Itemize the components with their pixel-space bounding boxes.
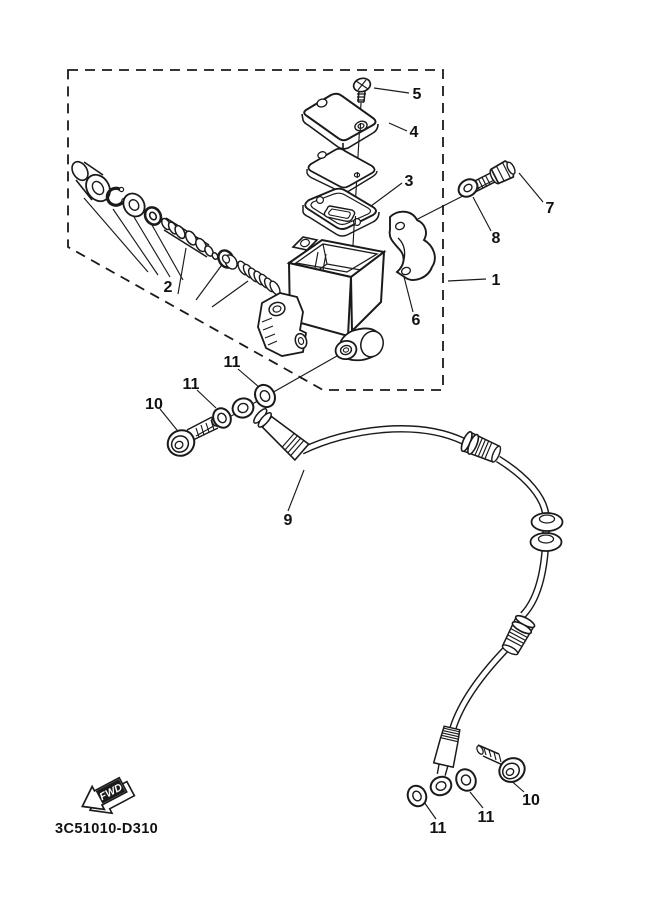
callout-10-bottom: 10 [522,792,540,809]
callout-5: 5 [413,86,422,103]
callout-9: 9 [284,512,293,529]
callout-11-bottom-left: 11 [430,820,447,837]
parts-diagram-page: 5 4 3 2 6 7 8 1 11 11 10 9 11 11 10 FWD … [0,0,661,913]
callout-3: 3 [405,173,414,190]
callout-6: 6 [412,312,421,329]
callout-8: 8 [492,230,501,247]
canvas-background [0,0,661,913]
callout-11-bottom-mid: 11 [478,809,495,826]
callout-7: 7 [546,200,555,217]
callout-11-top-right: 11 [224,354,241,371]
callout-11-top-left: 11 [183,376,200,393]
diagram-canvas: 5 4 3 2 6 7 8 1 11 11 10 9 11 11 10 FWD … [0,0,661,913]
callout-2: 2 [164,279,173,296]
callout-1: 1 [492,272,501,289]
callout-4: 4 [410,124,419,141]
callout-10-top: 10 [145,396,163,413]
part-code: 3C51010-D310 [55,821,158,837]
